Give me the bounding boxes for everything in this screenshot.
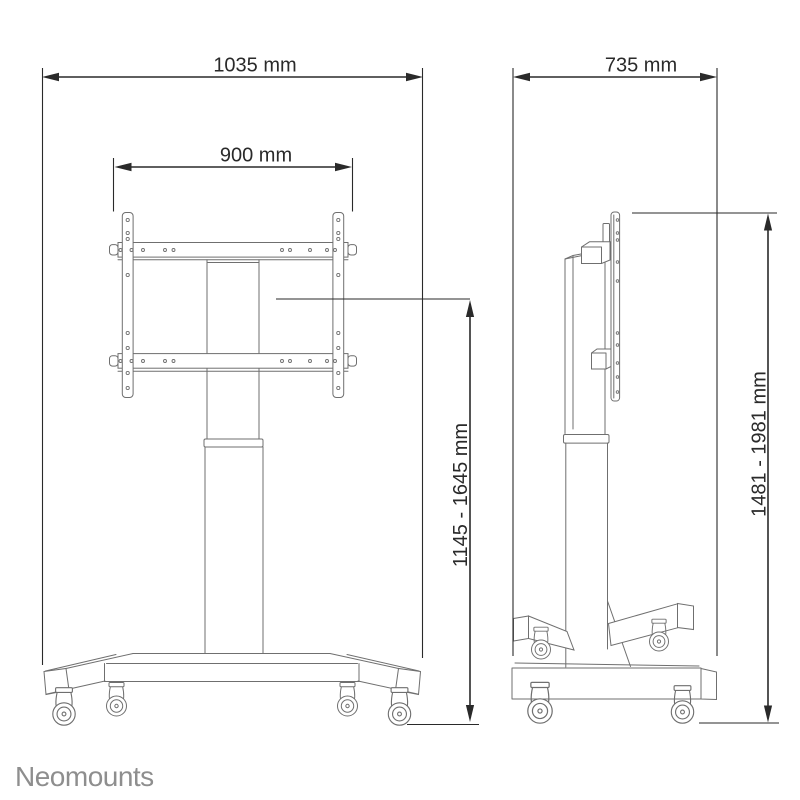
arrow-right-icon: [700, 73, 717, 81]
dim-total-width-label: 1035 mm: [213, 55, 296, 77]
arrow-left-icon: [42, 73, 59, 82]
caster-wheel: [107, 683, 127, 717]
front-lift-column: [205, 260, 263, 654]
front-telescope-collar: [204, 439, 263, 447]
front-base: [44, 654, 421, 695]
front-view: 1035 mm 900 mm 1145 - 1645 mm: [42, 55, 479, 726]
side-view: 735 mm 1481 - 1981 mm: [512, 55, 779, 724]
caster-wheel: [53, 688, 75, 726]
arrow-up-icon: [466, 300, 474, 317]
arrow-left-icon: [115, 163, 132, 171]
caster-wheel: [338, 683, 358, 717]
side-display-panel: [565, 250, 605, 435]
side-bottom-hook: [592, 349, 614, 369]
front-crossbar-top: [118, 243, 348, 258]
caster-wheel: [671, 686, 693, 724]
front-crossbar-bottom: [118, 354, 348, 369]
arrow-up-icon: [764, 214, 772, 231]
front-dimension-vesa-width: 900 mm: [115, 145, 353, 172]
caster-wheel: [528, 682, 552, 723]
dim-lift-height-label: 1145 - 1645 mm: [450, 423, 472, 567]
dim-total-height-label: 1481 - 1981 mm: [749, 371, 771, 517]
front-casters: [53, 683, 411, 726]
dim-vesa-width-label: 900 mm: [220, 145, 292, 167]
arrow-left-icon: [513, 73, 530, 81]
front-crossbars: [110, 243, 357, 372]
arrow-right-icon: [406, 73, 423, 82]
side-top-hook: [582, 242, 611, 264]
product-dimension-drawing: 1035 mm 900 mm 1145 - 1645 mm: [0, 0, 800, 800]
caster-wheel: [388, 688, 410, 726]
dim-depth-label: 735 mm: [605, 55, 677, 77]
brand-logo: Neomounts: [15, 761, 154, 793]
side-interface-rail: [582, 212, 620, 401]
technical-drawing: 1035 mm 900 mm 1145 - 1645 mm: [0, 0, 800, 800]
arrow-down-icon: [764, 706, 772, 723]
side-telescope-collar: [564, 435, 610, 444]
side-base: [512, 604, 717, 724]
arrow-right-icon: [335, 163, 352, 171]
arrow-down-icon: [466, 705, 474, 722]
